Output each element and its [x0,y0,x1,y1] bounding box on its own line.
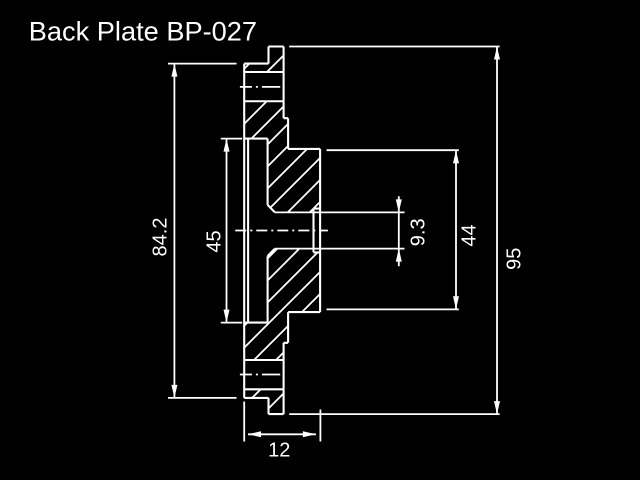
svg-text:95: 95 [503,248,525,270]
svg-text:44: 44 [458,224,480,246]
svg-text:12: 12 [268,440,290,462]
svg-text:45: 45 [203,230,225,252]
svg-text:9.3: 9.3 [408,218,430,246]
svg-text:84.2: 84.2 [150,218,172,257]
svg-text:Back Plate BP-027: Back Plate BP-027 [29,15,257,46]
